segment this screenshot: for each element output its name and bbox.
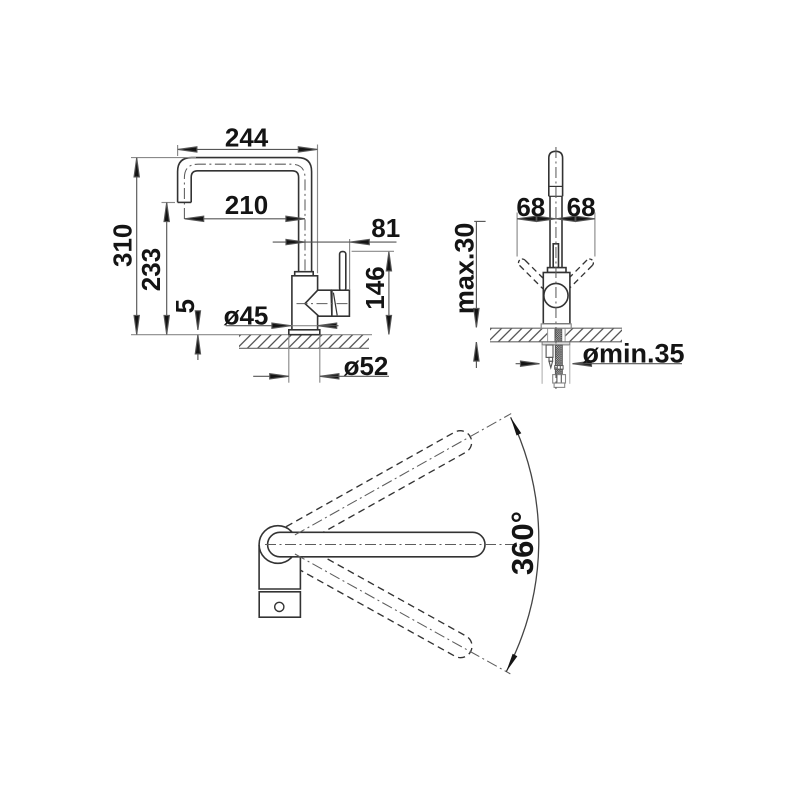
svg-text:68: 68 <box>516 192 545 222</box>
svg-text:146: 146 <box>360 266 390 309</box>
svg-text:310: 310 <box>108 224 138 267</box>
svg-text:68: 68 <box>567 192 596 222</box>
svg-text:max.30: max.30 <box>450 223 480 315</box>
svg-text:360°: 360° <box>505 511 540 575</box>
svg-text:244: 244 <box>225 123 269 153</box>
svg-text:ø52: ø52 <box>344 351 389 381</box>
svg-text:233: 233 <box>136 248 166 291</box>
svg-text:ømin.35: ømin.35 <box>582 339 684 369</box>
svg-text:ø45: ø45 <box>224 300 269 330</box>
svg-text:5: 5 <box>170 299 200 313</box>
svg-text:81: 81 <box>371 213 400 243</box>
svg-text:210: 210 <box>225 190 268 220</box>
